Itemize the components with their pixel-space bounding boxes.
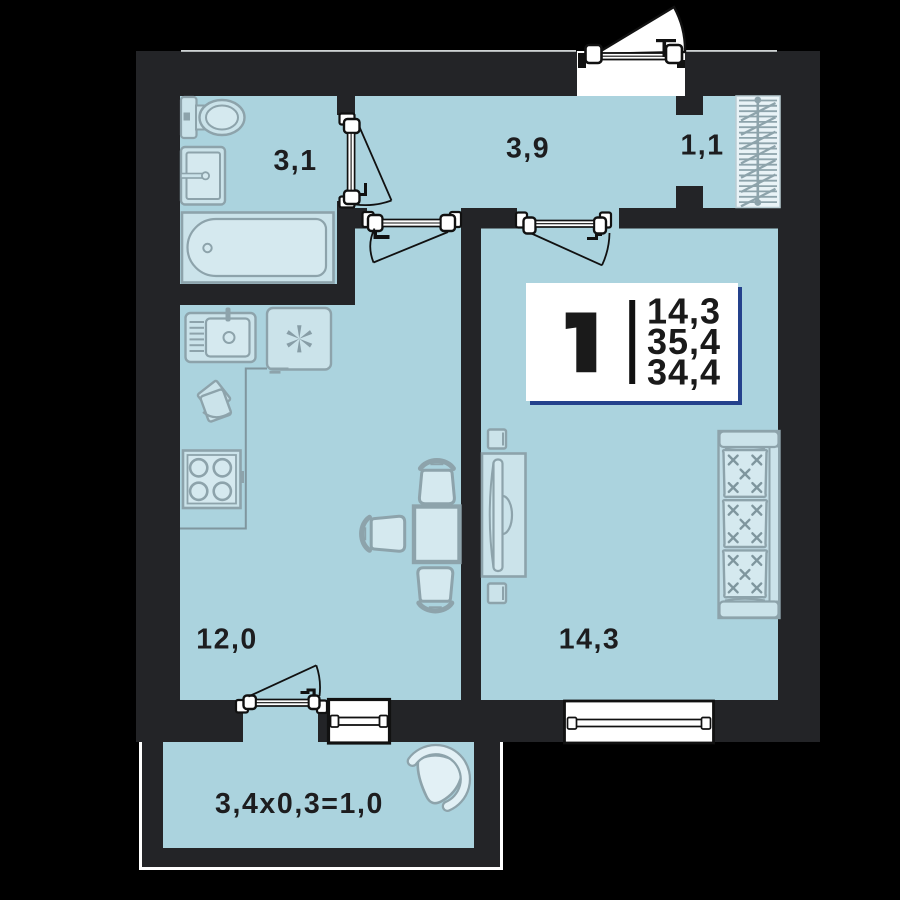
svg-text:12,0: 12,0 <box>196 624 257 656</box>
svg-text:34,4: 34,4 <box>647 352 721 393</box>
svg-text:14,3: 14,3 <box>559 624 620 656</box>
svg-text:3,9: 3,9 <box>506 133 550 165</box>
svg-text:3,4x0,3=1,0: 3,4x0,3=1,0 <box>215 788 384 820</box>
svg-text:3,1: 3,1 <box>273 145 317 177</box>
svg-text:1,1: 1,1 <box>680 130 724 162</box>
